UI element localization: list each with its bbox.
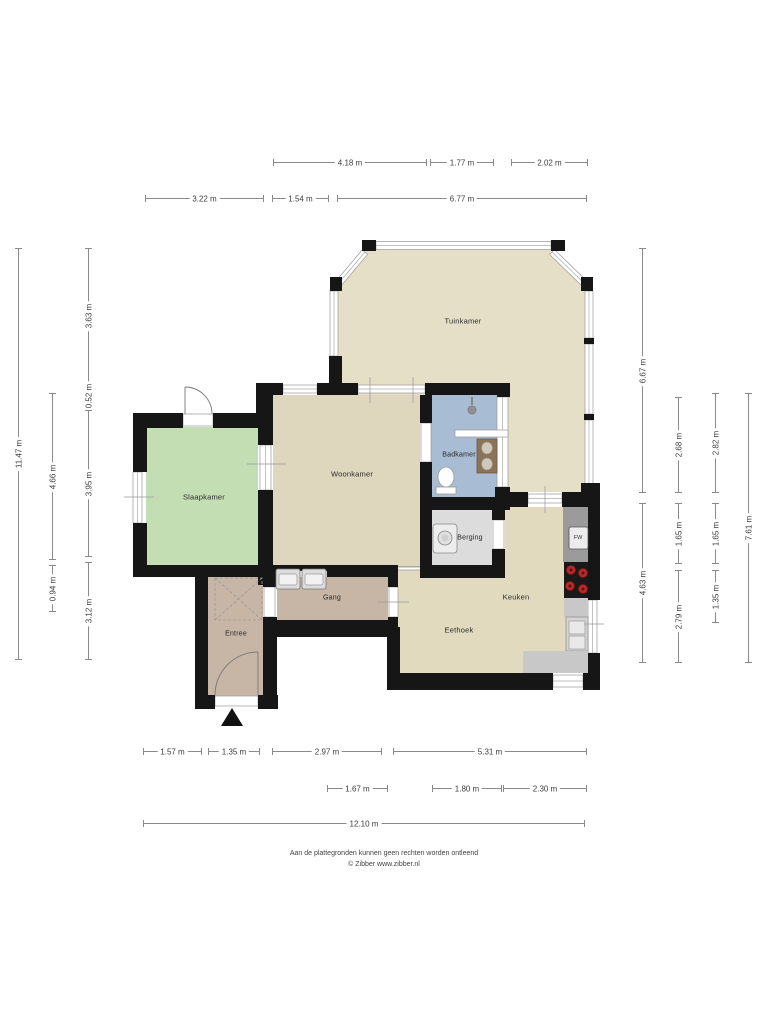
dim-right-4-63: 4.63 m xyxy=(642,503,643,663)
dim-left-0-94: 0.94 m xyxy=(52,565,53,612)
dim-label: 6.77 m xyxy=(447,195,477,204)
washing-machine-drum xyxy=(442,535,449,542)
dim-label: 1.65 m xyxy=(712,518,721,548)
dim-right-2-68: 2.68 m xyxy=(678,397,679,493)
counter-bottom-section xyxy=(523,651,588,673)
entrance-arrow-icon xyxy=(221,708,243,726)
dim-label: 0.52 m xyxy=(85,381,94,411)
room-label-tuinkamer: Tuinkamer xyxy=(445,317,482,326)
dim-label: 1.57 m xyxy=(157,748,187,757)
sink-basin-1 xyxy=(569,621,585,634)
dim-right-1-65b: 1.65 m xyxy=(715,503,716,564)
floorplan-page: Tuinkamer Woonkamer Slaapkamer Badkamer … xyxy=(0,0,768,1024)
dim-label: 3.63 m xyxy=(85,300,94,330)
dim-label: 2.97 m xyxy=(312,748,342,757)
dim-bottom-2-97: 2.97 m xyxy=(272,751,382,752)
toilet-bowl xyxy=(438,467,454,487)
dim-left-0-52: 0.52 m xyxy=(88,386,89,406)
floorplan-drawing xyxy=(0,0,768,1024)
dim-label: 2.68 m xyxy=(675,430,684,460)
dim-left-3-95: 3.95 m xyxy=(88,410,89,557)
dim-top-6-77: 6.77 m xyxy=(337,198,587,199)
dim-label: 1.80 m xyxy=(452,785,482,794)
dim-label: 3.95 m xyxy=(85,468,94,498)
dim-bottom-12-10: 12.10 m xyxy=(143,823,585,824)
dim-bottom-1-57: 1.57 m xyxy=(143,751,202,752)
dim-label: 0.94 m xyxy=(49,573,58,603)
dim-label: 12.10 m xyxy=(347,820,382,829)
room-label-eethoek: Eethoek xyxy=(445,626,474,635)
room-label-berging: Berging xyxy=(457,535,483,542)
shower-head xyxy=(468,406,476,414)
dim-label: 2.82 m xyxy=(712,428,721,458)
dim-label: 1.77 m xyxy=(447,159,477,168)
dim-label: 7.61 m xyxy=(745,513,754,543)
dim-left-4-66: 4.66 m xyxy=(52,393,53,560)
woonkamer-floor xyxy=(273,395,420,568)
dim-top-1-54: 1.54 m xyxy=(272,198,329,199)
room-label-entree: Entree xyxy=(225,631,247,638)
dim-label: 6.67 m xyxy=(639,355,648,385)
dim-label: 1.35 m xyxy=(712,581,721,611)
copyright-line: © Zibber www.zibber.nl xyxy=(0,861,768,868)
dim-right-6-67: 6.67 m xyxy=(642,248,643,493)
dim-bottom-5-31: 5.31 m xyxy=(393,751,587,752)
vanity-sink-1 xyxy=(482,442,493,454)
dim-label: 1.67 m xyxy=(342,785,372,794)
dim-label: 4.18 m xyxy=(335,159,365,168)
dim-bottom-1-35: 1.35 m xyxy=(208,751,260,752)
dim-right-1-35: 1.35 m xyxy=(715,570,716,623)
dim-right-2-82: 2.82 m xyxy=(715,393,716,493)
dim-right-2-79: 2.79 m xyxy=(678,570,679,663)
room-label-keuken: Keuken xyxy=(503,593,530,602)
dim-top-4-18: 4.18 m xyxy=(273,162,427,163)
dim-left-11-47: 11.47 m xyxy=(18,248,19,660)
disclaimer-line: Aan de plattegronden kunnen geen rechten… xyxy=(0,850,768,857)
room-label-badkamer: Badkamer xyxy=(442,452,476,459)
toilet-tank xyxy=(436,487,456,494)
dim-left-3-12: 3.12 m xyxy=(88,562,89,660)
dim-right-1-65a: 1.65 m xyxy=(678,503,679,564)
dim-bottom-1-67: 1.67 m xyxy=(327,788,388,789)
dim-label: 3.12 m xyxy=(85,596,94,626)
dim-label: 5.31 m xyxy=(475,748,505,757)
dim-label: 1.54 m xyxy=(285,195,315,204)
dim-label: 4.63 m xyxy=(639,568,648,598)
dim-top-1-77: 1.77 m xyxy=(430,162,494,163)
hall-appliance-1-front xyxy=(279,574,297,585)
counter-mid-section xyxy=(564,598,588,617)
dim-label: 11.47 m xyxy=(15,437,24,471)
shower-partition xyxy=(455,430,508,437)
hall-appliance-2-front xyxy=(305,574,323,585)
dim-label: 2.79 m xyxy=(675,601,684,631)
room-label-slaapkamer: Slaapkamer xyxy=(183,493,225,502)
dim-label: 1.35 m xyxy=(219,748,249,757)
dim-bottom-2-30: 2.30 m xyxy=(503,788,587,789)
oven-appliance-label: FW xyxy=(574,535,583,541)
sink-basin-2 xyxy=(569,636,585,649)
vanity-sink-2 xyxy=(482,458,493,470)
dim-right-7-61: 7.61 m xyxy=(748,393,749,663)
dim-label: 1.65 m xyxy=(675,518,684,548)
dim-label: 4.66 m xyxy=(49,461,58,491)
room-label-gang: Gang xyxy=(323,595,341,602)
dim-bottom-1-80: 1.80 m xyxy=(432,788,502,789)
dim-left-3-63: 3.63 m xyxy=(88,248,89,383)
room-label-woonkamer: Woonkamer xyxy=(331,470,373,479)
dim-top-2-02: 2.02 m xyxy=(511,162,588,163)
dim-label: 2.30 m xyxy=(530,785,560,794)
dim-label: 3.22 m xyxy=(189,195,219,204)
dim-label: 2.02 m xyxy=(534,159,564,168)
dim-top-3-22: 3.22 m xyxy=(145,198,264,199)
